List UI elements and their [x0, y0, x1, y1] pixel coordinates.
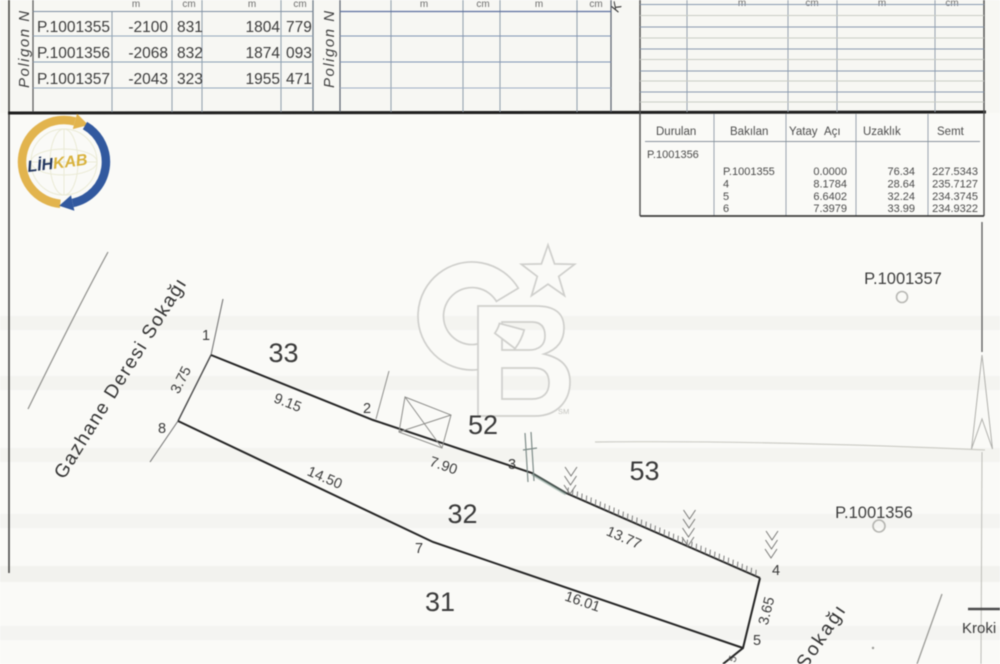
svg-text:Poligon N: Poligon N [16, 9, 33, 88]
svg-text:832: 832 [177, 45, 203, 62]
svg-text:cm: cm [476, 0, 489, 10]
svg-text:1: 1 [202, 328, 210, 344]
svg-text:33.99: 33.99 [887, 203, 915, 215]
svg-text:234.3745: 234.3745 [932, 191, 978, 203]
svg-text:0.0000: 0.0000 [813, 166, 847, 178]
svg-text:Bakılan: Bakılan [730, 126, 768, 138]
svg-text:P.1001356: P.1001356 [835, 504, 913, 522]
svg-text:5: 5 [723, 191, 729, 203]
svg-text:cm: cm [589, 0, 602, 10]
svg-text:234.9322: 234.9322 [932, 203, 978, 215]
svg-text:31: 31 [425, 587, 455, 617]
svg-text:093: 093 [286, 45, 312, 62]
svg-text:471: 471 [286, 71, 312, 88]
svg-text:227.5343: 227.5343 [932, 166, 978, 178]
svg-text:1955: 1955 [246, 71, 280, 88]
svg-text:P.1001356: P.1001356 [37, 45, 110, 62]
svg-text:235.7127: 235.7127 [932, 179, 978, 191]
svg-text:P.1001357: P.1001357 [864, 270, 942, 288]
svg-text:P.1001356: P.1001356 [647, 149, 699, 161]
svg-text:5: 5 [753, 633, 761, 649]
svg-text:Kroki: Kroki [962, 620, 996, 637]
svg-text:6: 6 [723, 203, 729, 215]
svg-text:7.3979: 7.3979 [813, 203, 847, 215]
svg-text:-2043: -2043 [128, 71, 168, 88]
svg-text:779: 779 [286, 19, 312, 36]
svg-text:Uzaklık: Uzaklık [863, 126, 901, 138]
svg-text:53: 53 [629, 456, 659, 486]
svg-text:6.6402: 6.6402 [813, 191, 847, 203]
svg-text:2: 2 [363, 401, 371, 417]
svg-text:1874: 1874 [246, 45, 281, 62]
svg-text:28.64: 28.64 [887, 179, 915, 191]
svg-text:1804: 1804 [246, 19, 281, 36]
svg-text:SM: SM [558, 407, 569, 416]
svg-text:8: 8 [158, 421, 166, 437]
svg-text:cm: cm [182, 0, 195, 10]
svg-text:m: m [535, 0, 543, 10]
svg-text:Semt: Semt [937, 126, 965, 138]
svg-text:33: 33 [268, 338, 298, 368]
svg-text:4: 4 [772, 563, 780, 579]
svg-text:m: m [132, 0, 140, 10]
svg-text:32.24: 32.24 [887, 191, 915, 203]
svg-text:P.1001355: P.1001355 [37, 19, 110, 36]
svg-text:P.1001355: P.1001355 [723, 166, 775, 178]
svg-text:-2068: -2068 [128, 45, 168, 62]
svg-text:8.1784: 8.1784 [813, 179, 847, 191]
svg-text:m: m [248, 0, 256, 10]
svg-text:32: 32 [447, 499, 477, 529]
svg-text:Yatay Açı: Yatay Açı [789, 126, 841, 138]
svg-text:831: 831 [177, 19, 203, 36]
svg-text:76.34: 76.34 [887, 166, 915, 178]
svg-text:3: 3 [508, 457, 516, 473]
svg-text:323: 323 [177, 71, 203, 88]
svg-text:4: 4 [723, 179, 729, 191]
svg-text:Poligon N: Poligon N [321, 9, 338, 88]
svg-text:-2100: -2100 [128, 19, 168, 36]
svg-text:m: m [420, 0, 428, 10]
svg-text:52: 52 [468, 410, 498, 440]
svg-text:Durulan: Durulan [656, 126, 696, 138]
svg-text:P.1001357: P.1001357 [37, 71, 110, 88]
svg-text:7: 7 [415, 541, 423, 557]
svg-text:cm: cm [293, 0, 306, 10]
